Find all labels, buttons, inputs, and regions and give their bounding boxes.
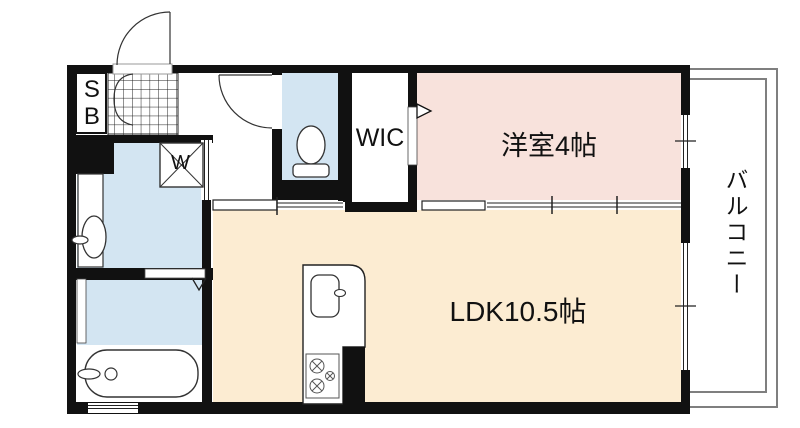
- toilet-door-opening: [272, 75, 282, 129]
- floorplan-drawing: [0, 0, 800, 428]
- washbasin-tap-icon: [72, 236, 88, 244]
- wall-bathroom-east: [202, 268, 212, 414]
- shoe-box-label: SB: [78, 76, 104, 130]
- entrance-threshold: [113, 64, 172, 74]
- wic-label: WIC: [350, 124, 410, 153]
- toilet-door: [219, 75, 272, 128]
- balcony-label: バルコニー: [718, 168, 752, 298]
- wall-south: [67, 402, 690, 414]
- bathroom-west-window-strip: [77, 279, 86, 343]
- bathtub-tap-icon: [78, 369, 100, 379]
- entrance-door: [117, 12, 170, 65]
- floorplan-canvas: SB W WIC 洋室4帖 LDK10.5帖 バルコニー: [0, 0, 800, 428]
- kitchen-tap-icon: [335, 290, 346, 297]
- bathroom-floor: [77, 280, 204, 345]
- ldk-label: LDK10.5帖: [408, 290, 628, 330]
- wall-chunk-nw: [67, 135, 114, 174]
- bathtub: [78, 350, 198, 397]
- window-bathroom-south: [88, 403, 138, 413]
- wall-kitchen-pillar-top: [343, 347, 365, 407]
- western-room-label: 洋室4帖: [429, 124, 669, 163]
- wall-wic-south: [345, 202, 417, 212]
- washer-label: W: [171, 152, 190, 175]
- kitchen-stove: [306, 354, 339, 398]
